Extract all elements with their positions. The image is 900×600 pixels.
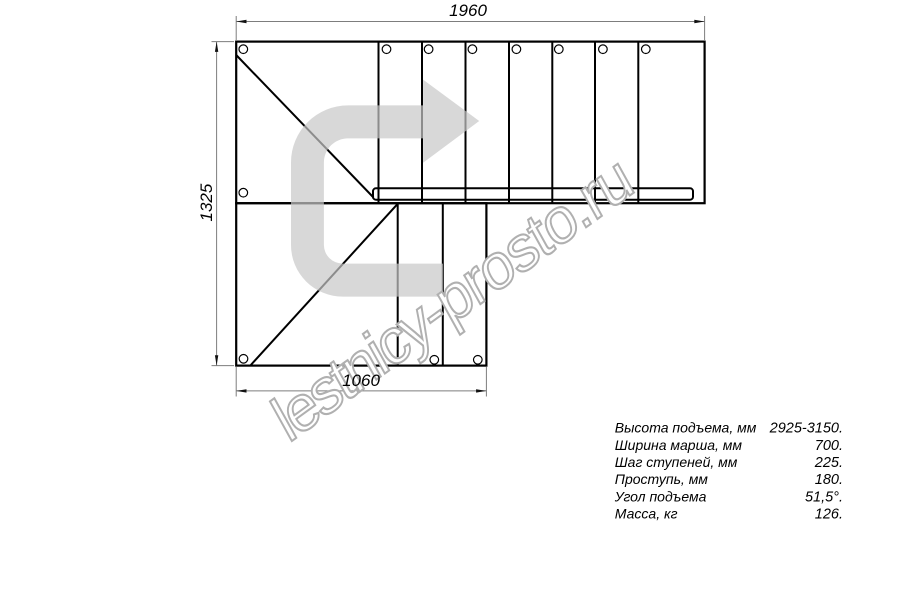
svg-text:Высота подъема, мм: Высота подъема, мм: [615, 420, 757, 436]
svg-text:Ширина марша, мм: Ширина марша, мм: [615, 437, 743, 453]
svg-text:Проступь, мм: Проступь, мм: [615, 471, 709, 487]
svg-text:2925-3150.: 2925-3150.: [769, 421, 843, 437]
svg-text:Масса, кг: Масса, кг: [615, 506, 678, 522]
svg-text:1325: 1325: [197, 183, 216, 221]
svg-text:700.: 700.: [815, 438, 843, 454]
svg-text:225.: 225.: [814, 455, 843, 471]
svg-text:Угол подъема: Угол подъема: [614, 488, 707, 504]
svg-text:126.: 126.: [815, 507, 843, 523]
svg-text:1960: 1960: [449, 1, 487, 20]
svg-text:1060: 1060: [342, 371, 380, 390]
svg-text:Шаг ступеней, мм: Шаг ступеней, мм: [615, 454, 738, 470]
svg-text:180.: 180.: [815, 472, 843, 488]
svg-text:51,5°.: 51,5°.: [805, 489, 843, 505]
